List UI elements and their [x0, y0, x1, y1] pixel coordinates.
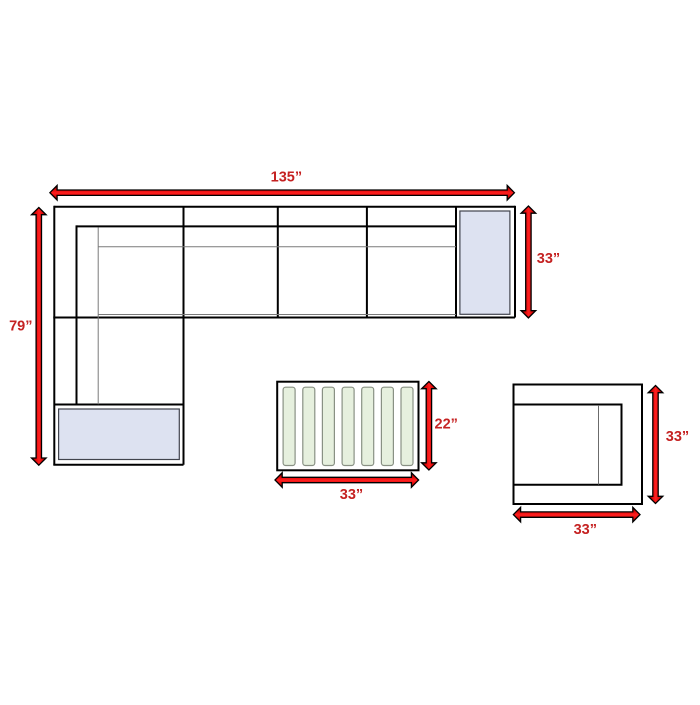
svg-text:33”: 33”	[666, 429, 689, 445]
svg-text:33”: 33”	[574, 522, 597, 538]
svg-text:79”: 79”	[9, 318, 32, 334]
svg-text:33”: 33”	[340, 487, 363, 503]
svg-text:135”: 135”	[271, 169, 302, 185]
svg-text:22”: 22”	[435, 417, 458, 433]
svg-text:33”: 33”	[537, 251, 560, 267]
